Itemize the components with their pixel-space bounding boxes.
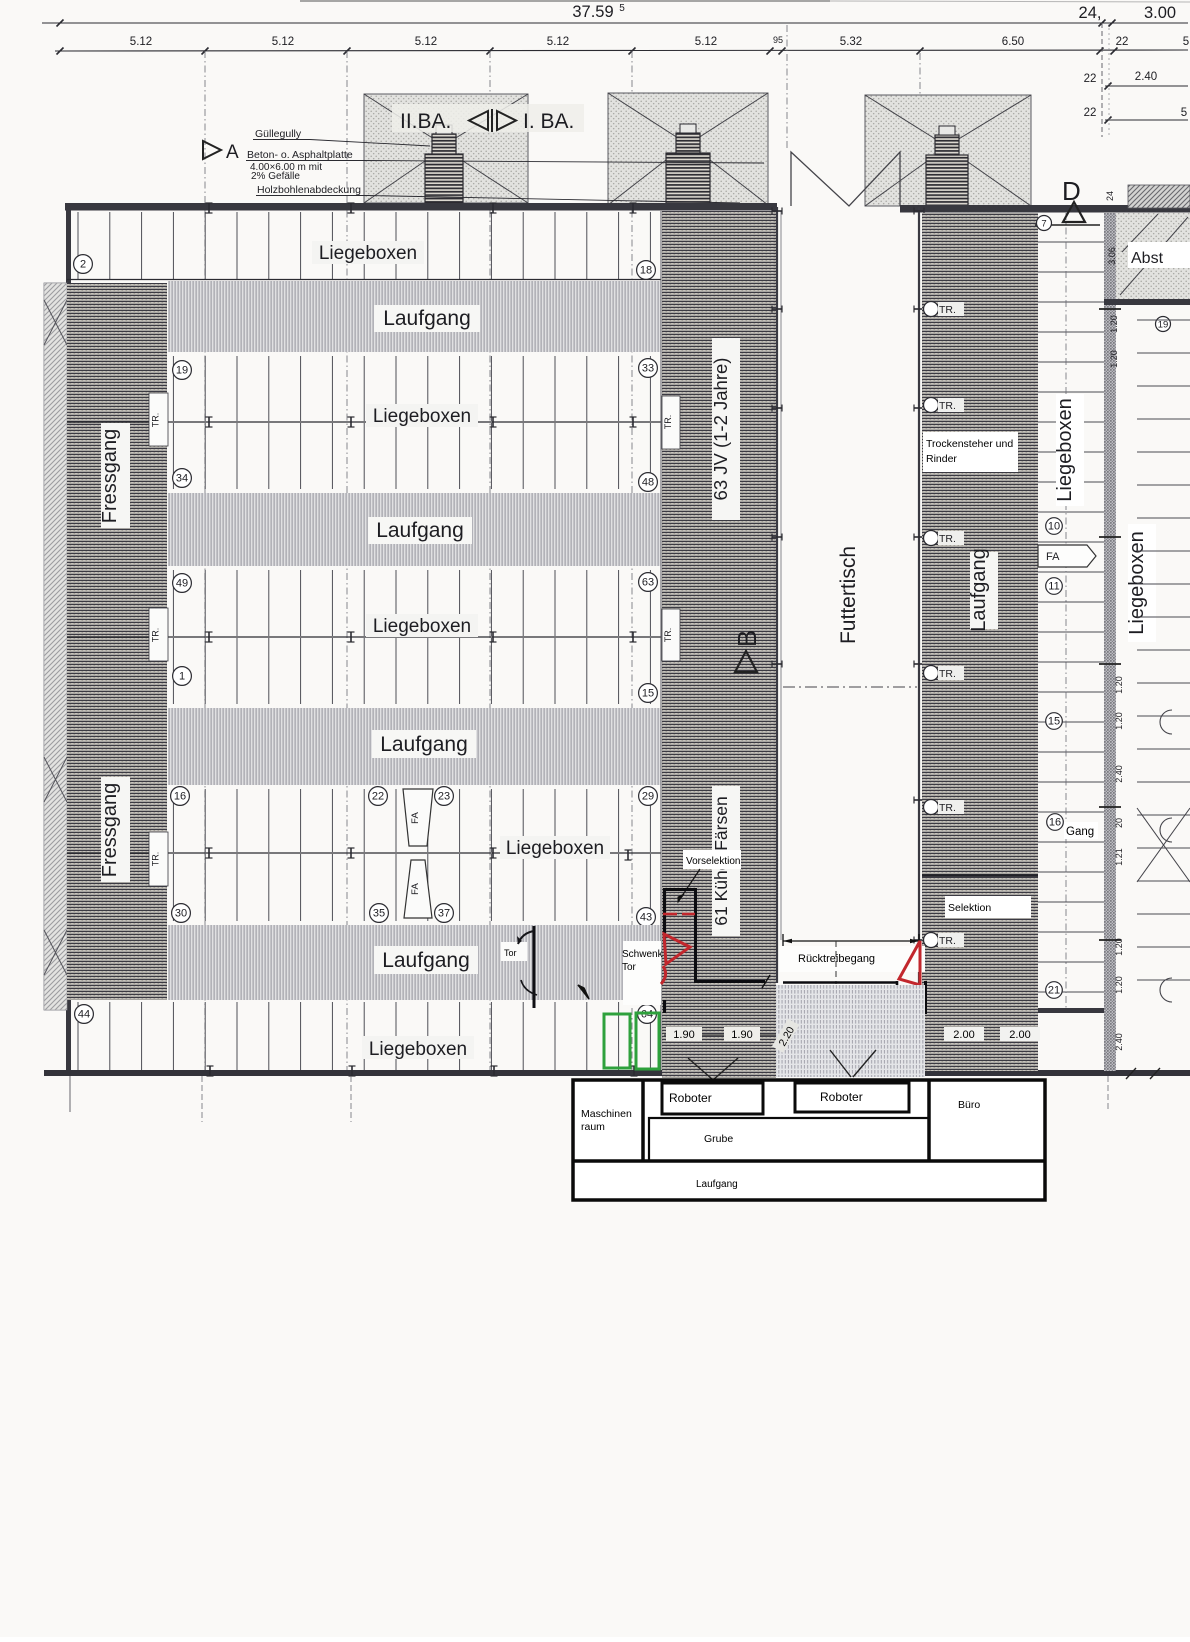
svg-text:Selektion: Selektion (948, 902, 991, 914)
svg-text:15: 15 (642, 688, 654, 700)
svg-text:1.20: 1.20 (1109, 315, 1119, 333)
svg-text:Laufgang: Laufgang (382, 949, 470, 972)
svg-text:2.00: 2.00 (953, 1029, 974, 1041)
svg-text:Rinder: Rinder (926, 453, 957, 465)
svg-text:TR.: TR. (663, 415, 673, 430)
svg-text:Liegeboxen: Liegeboxen (506, 838, 604, 859)
svg-text:34: 34 (176, 473, 188, 485)
svg-text:Gang: Gang (1066, 826, 1094, 838)
svg-text:64: 64 (641, 1009, 653, 1021)
svg-text:11: 11 (1048, 581, 1059, 593)
svg-text:Liegeboxen: Liegeboxen (319, 243, 417, 264)
svg-text:2.40: 2.40 (1114, 1033, 1124, 1051)
svg-text:22: 22 (372, 791, 384, 803)
svg-text:Güllegully: Güllegully (255, 128, 302, 140)
svg-text:Liegeboxen: Liegeboxen (1054, 398, 1076, 501)
svg-text:Laufgang: Laufgang (376, 519, 464, 542)
svg-text:II.BA.: II.BA. (400, 110, 451, 133)
svg-text:Fressgang: Fressgang (99, 783, 121, 878)
svg-text:1.20: 1.20 (1114, 712, 1124, 730)
svg-text:1.20: 1.20 (1114, 976, 1124, 994)
svg-text:FA: FA (1046, 551, 1060, 563)
svg-text:Laufgang: Laufgang (968, 548, 990, 631)
svg-text:1.20: 1.20 (1114, 676, 1124, 694)
svg-text:63 JV (1-2 Jahre): 63 JV (1-2 Jahre) (710, 358, 731, 501)
svg-text:Tor: Tor (622, 962, 637, 973)
svg-text:Schwenk: Schwenk (622, 949, 664, 960)
svg-text:5: 5 (1183, 36, 1189, 48)
svg-text:19: 19 (1158, 320, 1169, 331)
svg-text:15: 15 (1048, 716, 1060, 728)
svg-text:49: 49 (176, 578, 188, 590)
svg-text:TR.: TR. (939, 935, 956, 947)
svg-text:D: D (1062, 176, 1081, 206)
svg-text:2: 2 (80, 259, 86, 271)
svg-text:Trockensteher und: Trockensteher und (926, 438, 1013, 450)
svg-text:TR.: TR. (151, 628, 161, 643)
svg-text:1.20: 1.20 (1114, 938, 1124, 956)
svg-text:2.00: 2.00 (1009, 1029, 1030, 1041)
svg-text:Abst: Abst (1131, 250, 1164, 267)
svg-text:19: 19 (176, 365, 188, 377)
svg-text:TR.: TR. (939, 802, 956, 814)
svg-text:1.20: 1.20 (1109, 350, 1119, 368)
svg-text:1.90: 1.90 (731, 1029, 752, 1041)
svg-text:37: 37 (438, 908, 450, 920)
svg-text:Roboter: Roboter (820, 1090, 863, 1104)
svg-text:Fressgang: Fressgang (99, 429, 121, 524)
svg-text:5: 5 (1181, 107, 1187, 119)
svg-text:TR.: TR. (939, 533, 956, 545)
svg-text:22: 22 (1084, 107, 1097, 119)
svg-text:22: 22 (1116, 36, 1129, 48)
svg-text:B: B (732, 630, 762, 647)
svg-text:2% Gefälle: 2% Gefälle (251, 171, 300, 182)
svg-text:23: 23 (438, 791, 450, 803)
svg-text:20: 20 (1114, 818, 1124, 828)
svg-text:TR.: TR. (939, 668, 956, 680)
svg-text:FA: FA (410, 883, 421, 895)
svg-text:5.12: 5.12 (547, 36, 569, 48)
svg-text:21: 21 (1048, 985, 1060, 997)
svg-text:Tor: Tor (504, 948, 517, 958)
svg-text:5.12: 5.12 (695, 36, 717, 48)
svg-text:18: 18 (640, 265, 652, 277)
svg-text:48: 48 (642, 477, 654, 489)
svg-text:1.90: 1.90 (673, 1029, 694, 1041)
svg-text:Büro: Büro (958, 1099, 980, 1111)
svg-text:5.12: 5.12 (415, 36, 437, 48)
svg-text:Liegeboxen: Liegeboxen (373, 616, 471, 637)
svg-text:Laufgang: Laufgang (383, 307, 471, 330)
svg-text:30: 30 (175, 908, 187, 920)
svg-text:3.00: 3.00 (1144, 4, 1176, 22)
svg-text:2.40: 2.40 (1114, 765, 1124, 783)
svg-text:16: 16 (1049, 817, 1061, 829)
svg-text:33: 33 (642, 363, 654, 375)
svg-text:5.12: 5.12 (130, 36, 152, 48)
svg-text:63: 63 (642, 577, 654, 589)
svg-text:Roboter: Roboter (669, 1091, 712, 1105)
svg-text:44: 44 (78, 1009, 90, 1021)
svg-text:5.32: 5.32 (840, 36, 862, 48)
svg-text:I. BA.: I. BA. (523, 110, 574, 133)
svg-text:A: A (226, 142, 239, 163)
svg-text:Liegeboxen: Liegeboxen (1126, 531, 1148, 634)
svg-text:Futtertisch: Futtertisch (837, 546, 860, 644)
svg-text:Vorselektion: Vorselektion (686, 856, 740, 867)
svg-text:37.59: 37.59 (572, 3, 613, 21)
svg-text:3.06: 3.06 (1107, 247, 1117, 265)
svg-text:5.12: 5.12 (272, 36, 294, 48)
svg-text:TR.: TR. (939, 400, 956, 412)
svg-text:TR.: TR. (939, 304, 956, 316)
svg-text:1.21: 1.21 (1114, 848, 1124, 866)
svg-text:Laufgang: Laufgang (380, 733, 468, 756)
svg-text:24: 24 (1105, 191, 1115, 201)
svg-text:Liegeboxen: Liegeboxen (373, 406, 471, 427)
svg-text:24,: 24, (1079, 4, 1102, 22)
svg-text:Beton- o. Asphaltplatte: Beton- o. Asphaltplatte (247, 149, 353, 161)
svg-text:TR.: TR. (151, 413, 161, 428)
svg-text:5: 5 (619, 3, 625, 14)
svg-text:TR.: TR. (151, 852, 161, 867)
svg-text:FA: FA (410, 812, 421, 824)
svg-text:43: 43 (640, 912, 652, 924)
svg-text:Rücktreibegang: Rücktreibegang (798, 953, 875, 965)
svg-text:6.50: 6.50 (1002, 36, 1024, 48)
svg-text:Holzbohlenabdeckung: Holzbohlenabdeckung (257, 184, 361, 196)
svg-text:raum: raum (581, 1121, 605, 1133)
svg-text:Maschinen: Maschinen (581, 1108, 632, 1120)
svg-text:16: 16 (174, 791, 186, 803)
svg-text:35: 35 (373, 908, 385, 920)
svg-text:22: 22 (1084, 73, 1097, 85)
svg-text:TR.: TR. (663, 628, 673, 643)
svg-text:95: 95 (773, 35, 783, 45)
svg-text:2.40: 2.40 (1135, 71, 1157, 83)
svg-text:Grube: Grube (704, 1133, 733, 1145)
svg-text:10: 10 (1048, 521, 1060, 533)
svg-text:7: 7 (1041, 219, 1046, 230)
svg-text:29: 29 (642, 791, 654, 803)
svg-text:Laufgang: Laufgang (696, 1179, 738, 1190)
svg-text:Liegeboxen: Liegeboxen (369, 1039, 467, 1060)
svg-text:1: 1 (179, 671, 185, 683)
